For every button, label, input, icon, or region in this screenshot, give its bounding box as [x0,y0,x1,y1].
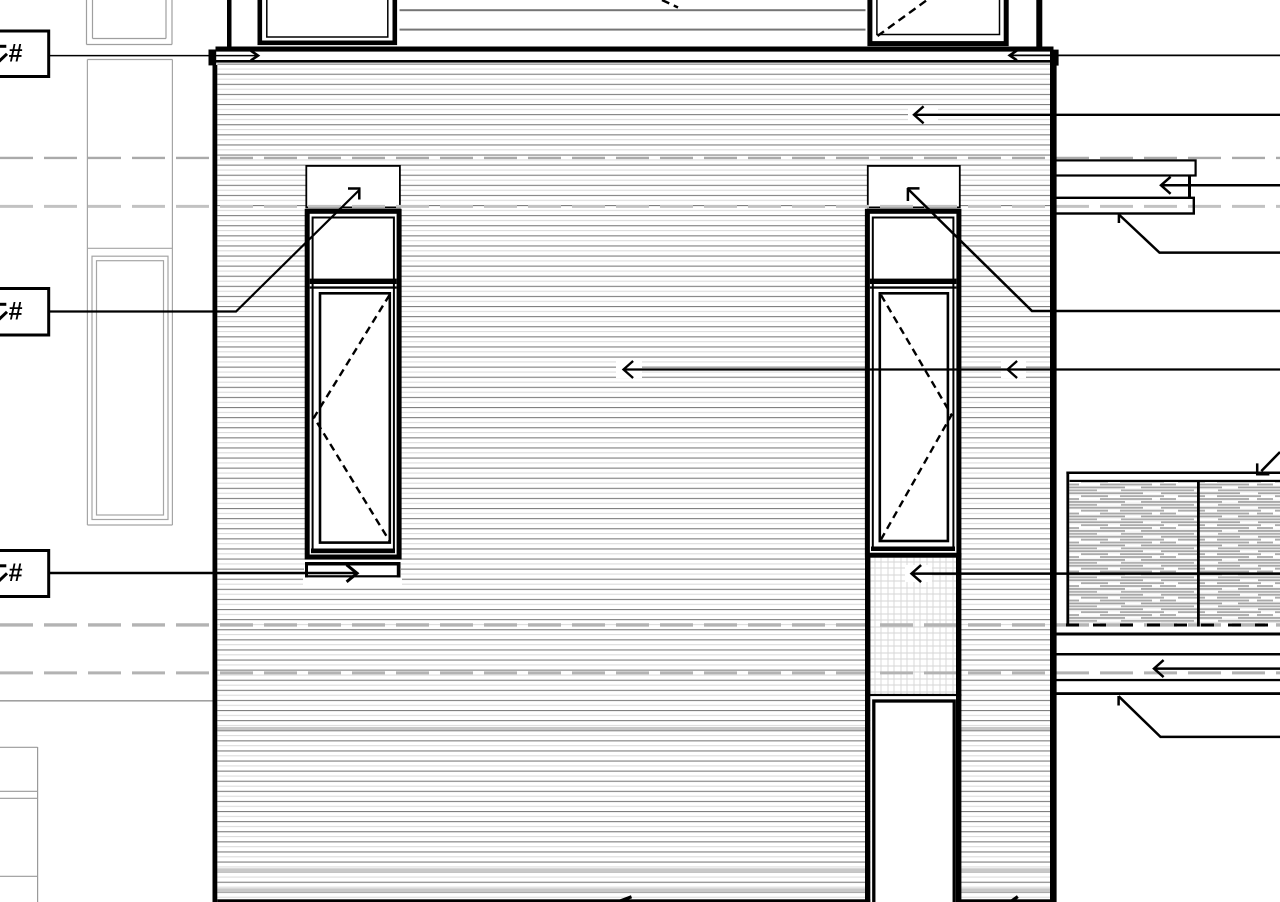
svg-text:#: # [9,298,23,326]
svg-text:#: # [9,40,23,68]
svg-text:#: # [9,559,23,587]
